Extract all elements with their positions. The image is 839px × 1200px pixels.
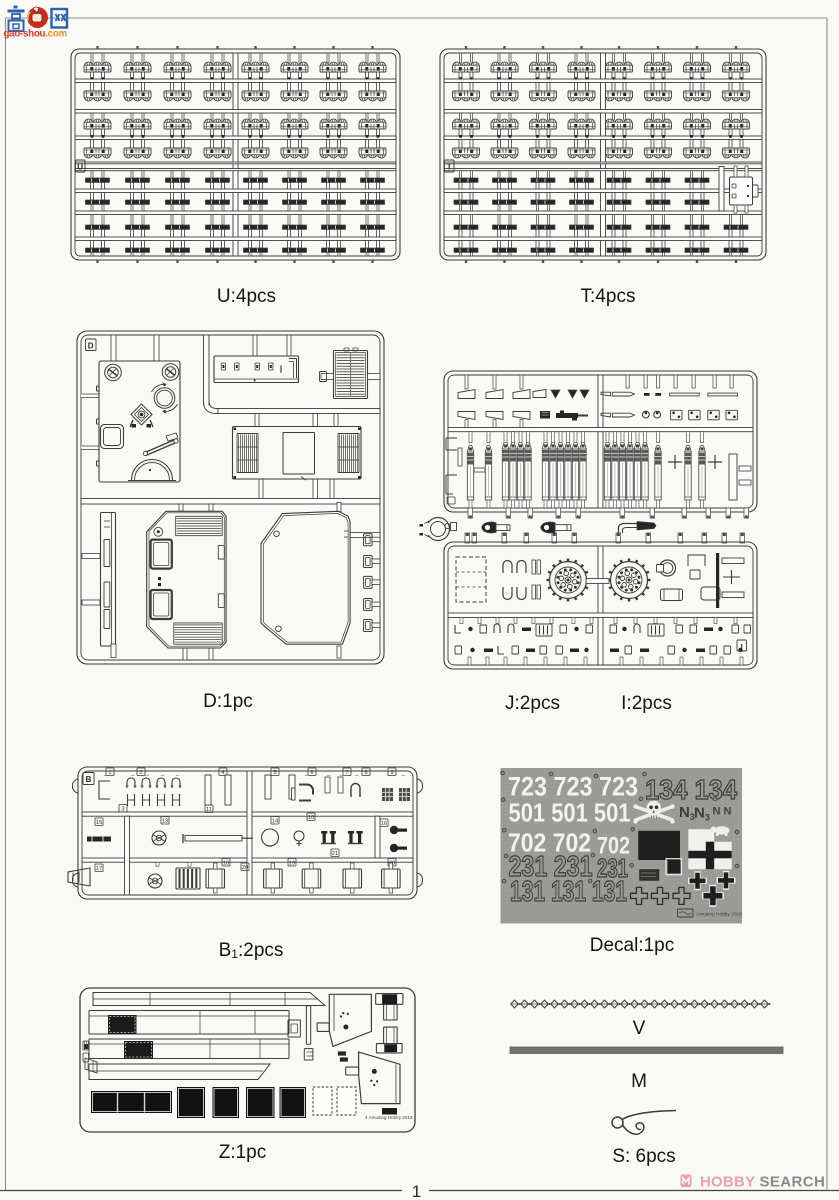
svg-text:HOBBY: HOBBY xyxy=(700,1174,755,1191)
svg-text:gao-shou.com: gao-shou.com xyxy=(4,29,68,40)
svg-text:U: U xyxy=(77,163,83,172)
svg-text:8: 8 xyxy=(364,770,367,776)
svg-text:5: 5 xyxy=(273,770,276,776)
svg-text:18: 18 xyxy=(223,861,229,867)
svg-text:1: 1 xyxy=(108,770,111,776)
svg-text:D:1pc: D:1pc xyxy=(203,691,253,712)
svg-text:10: 10 xyxy=(308,815,314,821)
svg-text:T: T xyxy=(447,163,452,172)
svg-text:20: 20 xyxy=(242,865,248,871)
svg-text:U:4pcs: U:4pcs xyxy=(217,286,276,307)
svg-text:4 Amusing Hobby 2016: 4 Amusing Hobby 2016 xyxy=(365,1115,413,1120)
svg-text:11: 11 xyxy=(206,807,212,813)
svg-text:Z:1pc: Z:1pc xyxy=(219,1142,267,1163)
svg-text:N: N xyxy=(713,806,721,818)
svg-text:I:2pcs: I:2pcs xyxy=(621,693,672,714)
svg-text:1: 1 xyxy=(412,1182,421,1200)
svg-text:SEARCH: SEARCH xyxy=(760,1174,826,1191)
svg-text:D: D xyxy=(88,342,94,351)
svg-text:T:4pcs: T:4pcs xyxy=(581,286,636,307)
svg-text:V: V xyxy=(633,1018,646,1039)
svg-text:131 131 131: 131 131 131 xyxy=(510,876,627,908)
svg-text:J:2pcs: J:2pcs xyxy=(505,693,560,714)
svg-text:134 134: 134 134 xyxy=(645,774,737,805)
svg-text:9: 9 xyxy=(390,770,393,776)
svg-text:13: 13 xyxy=(162,819,168,825)
svg-text:17: 17 xyxy=(96,866,102,872)
svg-text:3: 3 xyxy=(121,807,124,813)
svg-text:M: M xyxy=(631,1071,647,1092)
svg-text:B1:2pcs: B1:2pcs xyxy=(219,940,284,961)
svg-text:19: 19 xyxy=(289,861,295,867)
svg-text:21: 21 xyxy=(332,851,338,857)
svg-text:Amusing Hobby 2016: Amusing Hobby 2016 xyxy=(696,912,742,918)
svg-text:6: 6 xyxy=(310,770,313,776)
svg-text:501 501 501: 501 501 501 xyxy=(509,798,631,828)
svg-text:7: 7 xyxy=(345,770,348,776)
svg-text:2: 2 xyxy=(139,770,142,776)
svg-text:Decal:1pc: Decal:1pc xyxy=(590,935,675,956)
svg-text:B: B xyxy=(86,775,92,784)
svg-text:14: 14 xyxy=(272,819,279,825)
svg-text:I: I xyxy=(741,642,743,651)
svg-text:N: N xyxy=(724,806,732,818)
svg-text:16: 16 xyxy=(381,821,387,827)
svg-text:S: 6pcs: S: 6pcs xyxy=(612,1146,675,1167)
svg-text:15: 15 xyxy=(96,820,102,826)
